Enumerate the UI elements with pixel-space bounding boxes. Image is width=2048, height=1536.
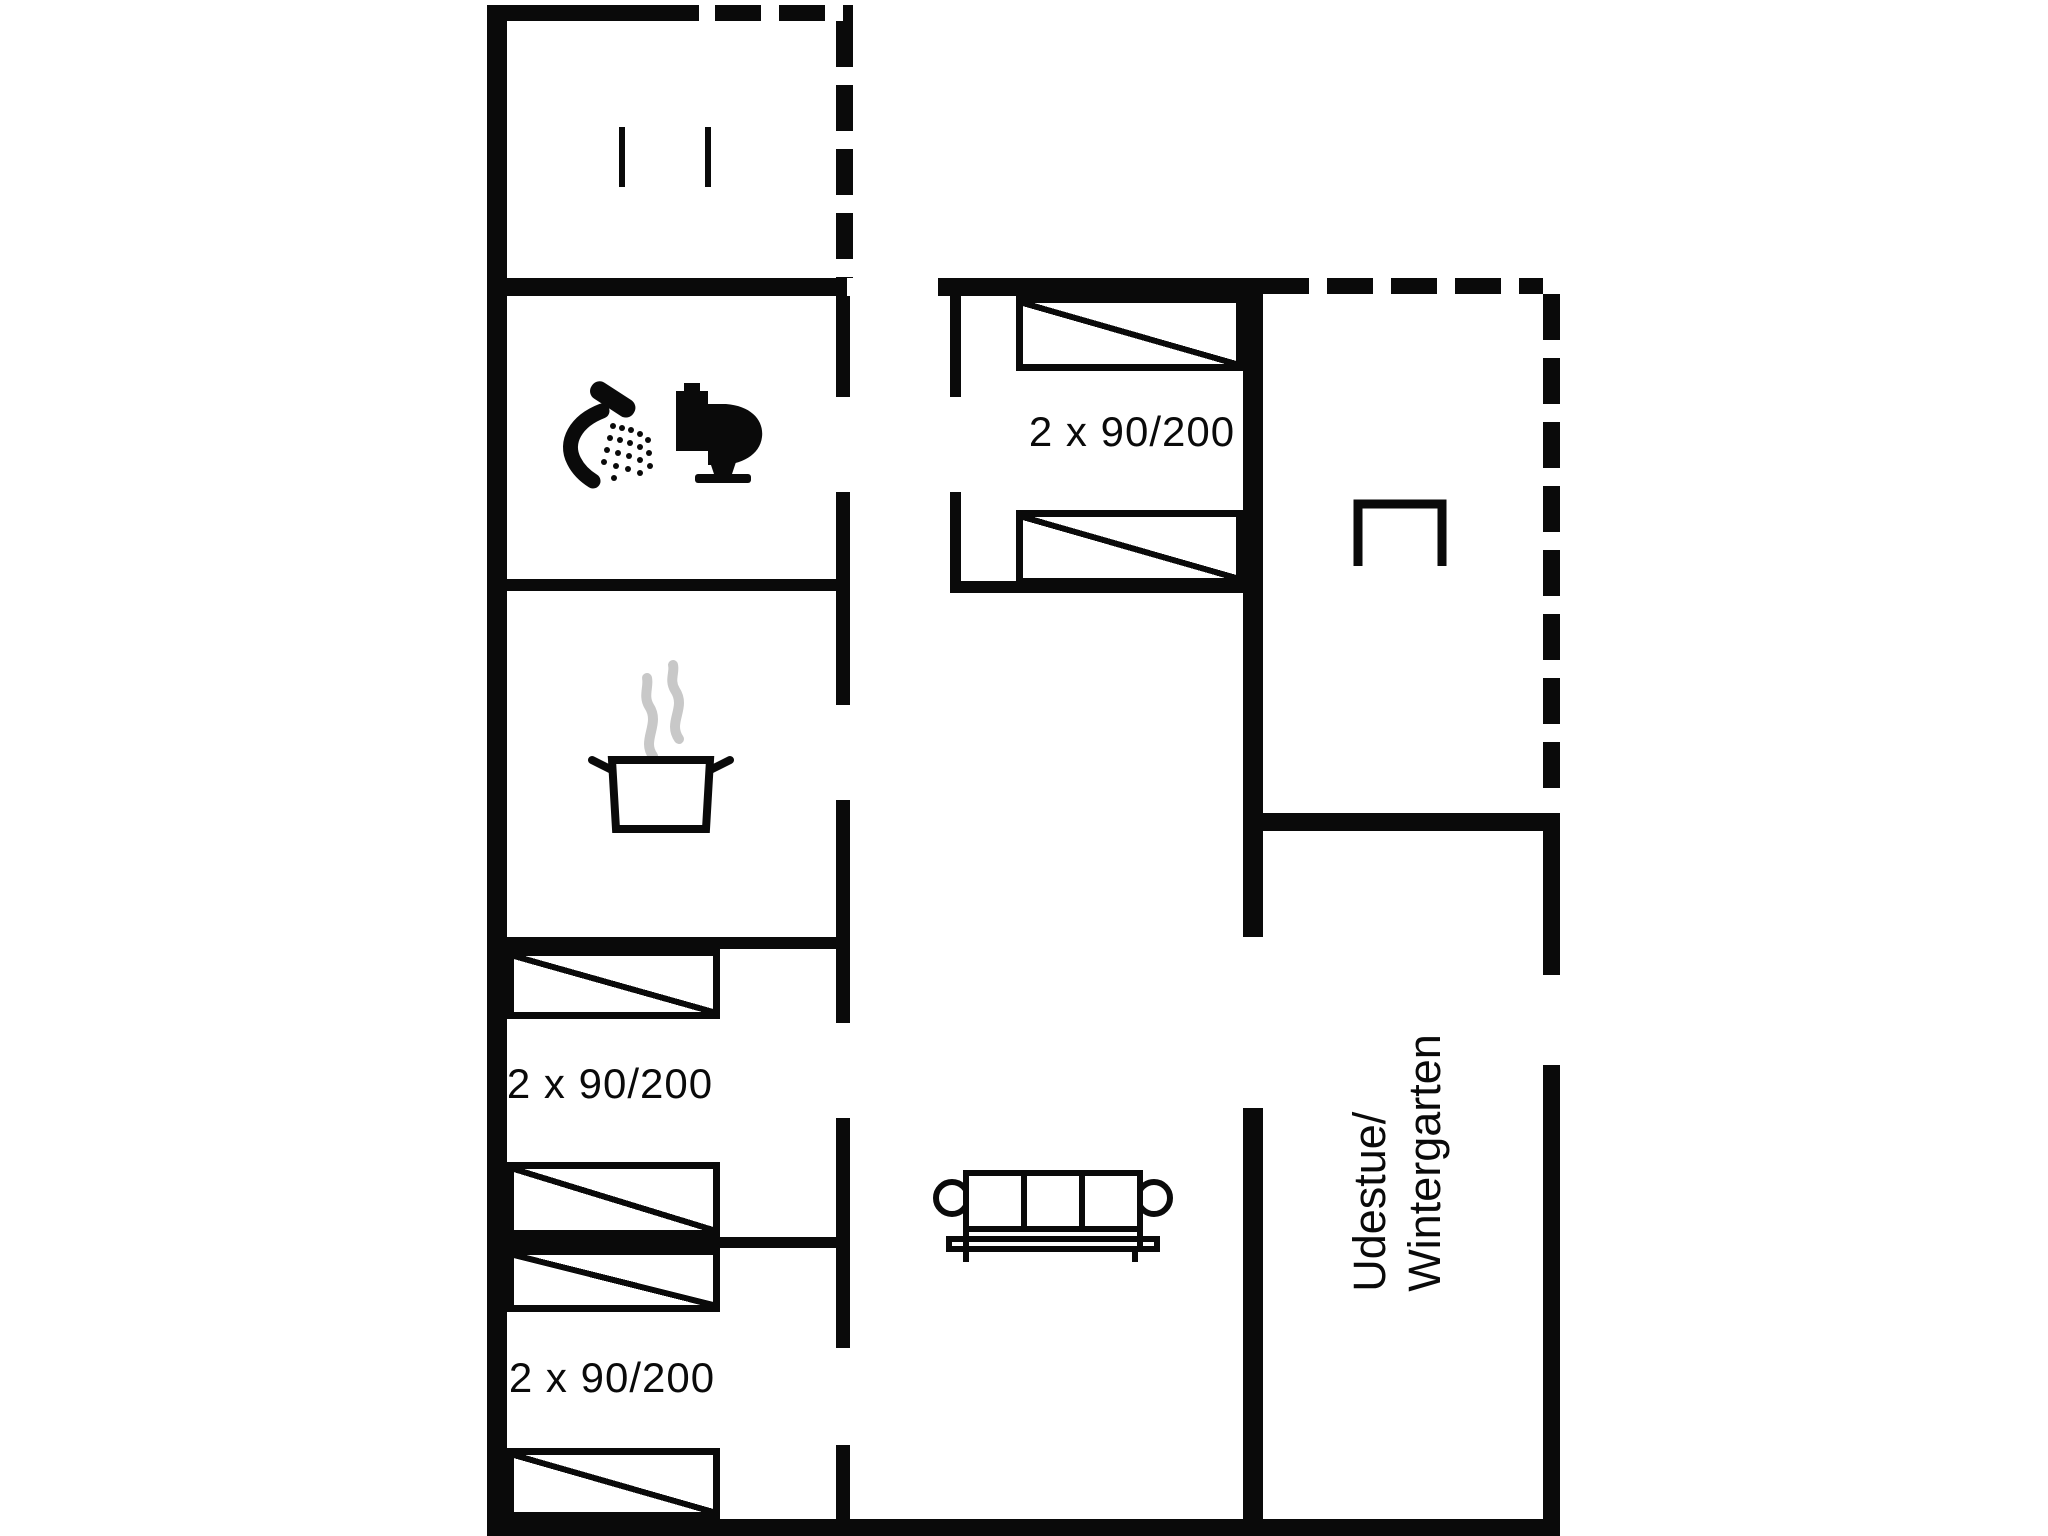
- bed-size-label: 2 x 90/200: [488, 1060, 732, 1108]
- wall-entry-right-dashed: [836, 21, 853, 278]
- floor-plan: 2 x 90/200 2 x 90/200 2 x 90/200 Udestue…: [0, 0, 2048, 1536]
- wall-bedrooms-divider: [487, 1237, 850, 1248]
- wall-right-outer-seg2: [1543, 1065, 1560, 1536]
- wall-main-right-seg2: [1243, 1108, 1263, 1536]
- wall-midroom-left-seg2: [950, 492, 961, 592]
- wall-conservatory-top: [1243, 813, 1560, 831]
- wall-hall-seg3: [836, 800, 850, 1023]
- wall-entry-top-dashed: [715, 5, 853, 21]
- bed-symbol: [1016, 296, 1243, 371]
- wall-hall-seg2: [836, 492, 850, 705]
- wall-entry-top-solid: [487, 5, 699, 21]
- bed-size-label: 2 x 90/200: [1010, 408, 1254, 456]
- bed-symbol: [507, 1162, 720, 1237]
- wall-bottom-outer: [487, 1519, 1560, 1536]
- wall-hall-seg1: [836, 296, 850, 397]
- bed-symbol: [507, 1448, 720, 1519]
- shower-icon: [550, 380, 662, 502]
- sofa-icon: [933, 1168, 1175, 1266]
- wall-hall-seg4: [836, 1118, 850, 1348]
- table-icon: [1350, 496, 1450, 570]
- wall-terrace-top-dashed: [1263, 278, 1543, 294]
- conservatory-label-line1: Udestue/: [1343, 1034, 1398, 1292]
- wall-bath-kitchen-divider: [487, 579, 850, 591]
- bed-size-label: 2 x 90/200: [490, 1354, 734, 1402]
- wall-entry-bottom: [487, 278, 847, 296]
- bed-symbol: [1016, 510, 1243, 585]
- conservatory-label-line2: Wintergarten: [1398, 1034, 1453, 1292]
- conservatory-label: Udestue/ Wintergarten: [1343, 1034, 1453, 1292]
- entry-door-marker: [619, 127, 625, 187]
- bed-symbol: [507, 949, 720, 1019]
- wall-main-right-seg1: [1243, 278, 1263, 937]
- wall-left-outer: [487, 5, 507, 1536]
- wall-kitchen-bedroom-divider: [487, 937, 850, 949]
- wall-midroom-top: [938, 278, 1263, 296]
- cooking-pot-icon: [585, 650, 745, 835]
- wall-right-outer-seg1: [1543, 813, 1560, 975]
- wall-terrace-right-dashed: [1543, 294, 1560, 800]
- entry-door-marker: [705, 127, 711, 187]
- bed-symbol: [507, 1248, 720, 1312]
- steam-icon: [646, 665, 679, 756]
- wall-midroom-left-seg1: [950, 296, 961, 397]
- toilet-icon: [668, 378, 768, 490]
